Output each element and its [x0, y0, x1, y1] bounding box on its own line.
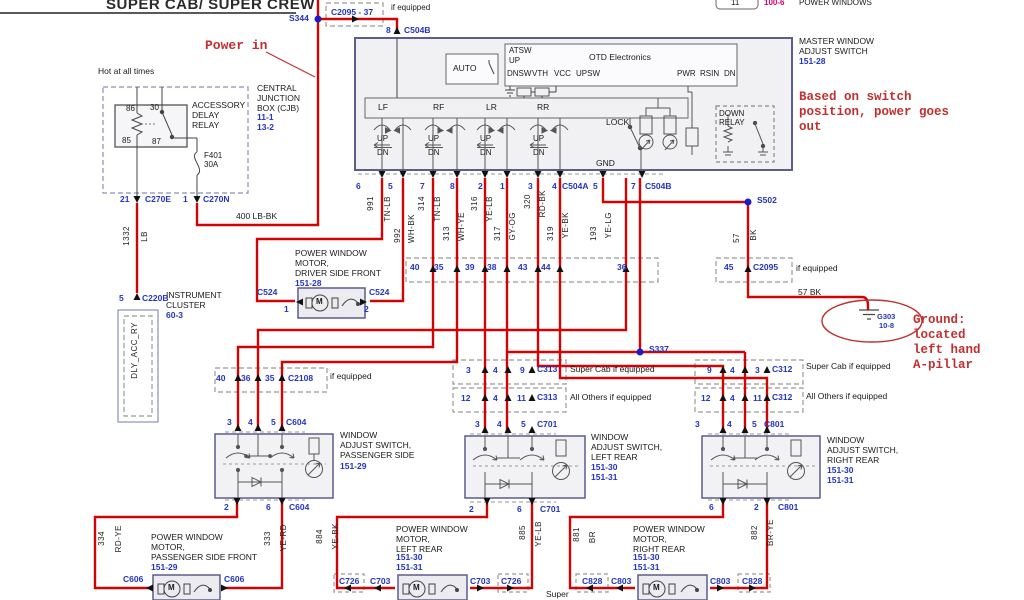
splice-s344-label: S344	[289, 13, 309, 23]
wire-400-lb-bk: 400 LB-BK	[236, 211, 277, 221]
wire-881: 881	[572, 527, 581, 542]
channel-lf: LF	[378, 102, 388, 112]
pin-21: 21	[120, 194, 129, 204]
wiring-diagram: SUPER CAB/ SUPER CREW 11 100-6 POWER WIN…	[0, 0, 1024, 600]
pin-rsin: RSIN	[700, 69, 719, 78]
passenger-switch-ref: 151-29	[340, 461, 366, 471]
signal-dly-acc-ry: DLY_ACC_RY	[130, 322, 139, 379]
pin-dnsw: DNSW	[507, 69, 531, 78]
connector-c726-right: C726	[501, 576, 521, 586]
wire-319: 319	[546, 226, 555, 241]
c2108-pin-36: 36	[241, 373, 250, 383]
passenger-motor-m: M	[168, 583, 175, 592]
connector-c803-right: C803	[710, 576, 730, 586]
connector-c524-left: C524	[257, 287, 277, 297]
wire-316-color: YE-LB	[485, 196, 494, 222]
connector-c803-left: C803	[611, 576, 631, 586]
wire-57-bk-horizontal: 57 BK	[798, 287, 821, 297]
connector-c604-bottom: C604	[289, 502, 309, 512]
connector-c606-left: C606	[123, 574, 143, 584]
relay-pin-87: 87	[152, 137, 161, 146]
note-super-cab-c313: Super Cab if equipped	[570, 364, 655, 374]
msw-pin-1: 1	[500, 181, 505, 191]
pin-up: UP	[509, 56, 520, 65]
wire-57-color: BK	[749, 229, 758, 241]
wire-314: 314	[417, 196, 426, 211]
wire-334-color: RD-YE	[114, 525, 123, 552]
connector-c504b: C504B	[645, 181, 671, 191]
connector-c703-right: C703	[470, 576, 490, 586]
connector-c270n: C270N	[203, 194, 229, 204]
connector-c312-r1: C312	[772, 364, 792, 374]
c313-r2-pin-12: 12	[461, 393, 470, 403]
c801-top-pin-3: 3	[695, 419, 700, 429]
otd-electronics-label: OTD Electronics	[589, 52, 651, 62]
c801-top-pin-5: 5	[752, 419, 757, 429]
connector-c220b: C220B	[142, 293, 168, 303]
note-based-on-switch: Based on switch position, power goes out	[799, 90, 949, 135]
note-all-others-c312: All Others if equipped	[806, 391, 887, 401]
lr-dn-label: DN	[480, 148, 492, 157]
c701-top-pin-5: 5	[521, 419, 526, 429]
channel-rr: RR	[537, 102, 549, 112]
left-rear-switch-ref: 151-30 151-31	[591, 463, 617, 483]
connector-c801-top: C801	[764, 419, 784, 429]
c801-bottom-pin-2: 2	[754, 502, 759, 512]
wire-314-color: TN-LB	[433, 196, 442, 222]
msw-pin-7: 7	[420, 181, 425, 191]
note-hot-at-all-times: Hot at all times	[98, 66, 154, 76]
crow-pin-43: 43	[518, 262, 527, 272]
connector-c828-left: C828	[582, 576, 602, 586]
c312-r1-pin-3: 3	[755, 365, 760, 375]
ground-ref: 10-8	[879, 321, 894, 330]
connector-c726-left: C726	[339, 576, 359, 586]
relay-pin-86: 86	[126, 104, 135, 113]
connector-c604-top: C604	[286, 417, 306, 427]
header-ref: 100-6	[764, 0, 784, 7]
connector-c701-bottom: C701	[540, 504, 560, 514]
msw-pin-6: 6	[356, 181, 361, 191]
note-power-in: Power in	[205, 38, 267, 53]
note-super-cab-c312: Super Cab if equipped	[806, 361, 891, 371]
wire-333: 333	[263, 531, 272, 546]
msw-pin-5: 5	[388, 181, 393, 191]
crow-pin-36: 36	[617, 262, 626, 272]
msw-pin-4: 4	[552, 181, 557, 191]
wire-317: 317	[493, 226, 502, 241]
c2108-pin-35: 35	[265, 373, 274, 383]
connector-c801-bottom: C801	[778, 502, 798, 512]
left-rear-motor-m: M	[413, 583, 420, 592]
passenger-motor-label: POWER WINDOW MOTOR, PASSENGER SIDE FRONT	[151, 533, 257, 562]
c701-top-pin-4: 4	[497, 419, 502, 429]
rr-up-label: UP	[533, 134, 544, 143]
pin-atsw: ATSW	[509, 46, 532, 55]
c604-bottom-pin-2: 2	[224, 502, 229, 512]
c801-top-pin-4: 4	[727, 419, 732, 429]
wire-992-color: WH-BK	[407, 214, 416, 243]
rr-dn-label: DN	[533, 148, 545, 157]
c2108-pin-40: 40	[216, 373, 225, 383]
wire-193-color: YE-LG	[604, 212, 613, 239]
c604-bottom-pin-6: 6	[266, 502, 271, 512]
relay-pin-30: 30	[150, 103, 159, 112]
wire-320-color: RD-BK	[538, 190, 547, 217]
c701-top-pin-3: 3	[475, 419, 480, 429]
connector-c701-top: C701	[537, 419, 557, 429]
accessory-delay-relay-label: ACCESSORY DELAY RELAY	[192, 101, 245, 130]
c313-r1-pin-4: 4	[493, 365, 498, 375]
wire-320: 320	[523, 194, 532, 209]
wire-334: 334	[97, 531, 106, 546]
master-switch-label: MASTER WINDOW ADJUST SWITCH	[799, 37, 874, 57]
right-rear-motor-m: M	[653, 583, 660, 592]
c312-r2-pin-4: 4	[730, 393, 735, 403]
splice-s502-label: S502	[757, 195, 777, 205]
crow-pin-39: 39	[465, 262, 474, 272]
note-if-equipped-crow: if equipped	[796, 263, 838, 273]
connector-c2108: C2108	[288, 373, 313, 383]
connector-c828-right: C828	[742, 576, 762, 586]
left-rear-motor-ref: 151-30 151-31	[396, 553, 422, 573]
wire-1332-number: 1332	[122, 226, 131, 246]
pin-upsw: UPSW	[576, 69, 600, 78]
instrument-cluster-label: INSTRUMENT CLUSTER	[166, 291, 222, 311]
msw-pin-5-c504a: 5	[593, 181, 598, 191]
wire-992: 992	[393, 228, 402, 243]
right-rear-motor-ref: 151-30 151-31	[633, 553, 659, 573]
msw-pin-2: 2	[478, 181, 483, 191]
fuse-f401-label: F401 30A	[204, 151, 222, 169]
right-rear-motor-label: POWER WINDOW MOTOR, RIGHT REAR	[633, 525, 705, 554]
connector-c524-right: C524	[369, 287, 389, 297]
wire-317-color: GY-OG	[508, 212, 517, 240]
note-super-bottom: Super	[546, 589, 569, 599]
connector-c504b-top: C504B	[404, 25, 430, 35]
connector-c2095: C2095	[753, 262, 778, 272]
connector-c313-r2: C313	[537, 392, 557, 402]
pin-1-c270n: 1	[183, 194, 188, 204]
left-rear-switch-label: WINDOW ADJUST SWITCH, LEFT REAR	[591, 433, 662, 462]
connector-c504a: C504A	[562, 181, 588, 191]
page-title: SUPER CAB/ SUPER CREW	[106, 0, 315, 13]
pin-vth: VTH	[532, 69, 548, 78]
c604-top-pin-5: 5	[271, 417, 276, 427]
down-relay-label: DOWN RELAY	[719, 109, 745, 127]
left-rear-motor-label: POWER WINDOW MOTOR, LEFT REAR	[396, 525, 468, 554]
wire-885: 885	[518, 525, 527, 540]
cjb-page-refs: 11-1 13-2	[257, 113, 274, 133]
wire-884-color: YE-BK	[331, 523, 340, 550]
c313-r2-pin-4: 4	[493, 393, 498, 403]
c312-r2-pin-11: 11	[753, 393, 762, 403]
passenger-motor-ref: 151-29	[151, 562, 177, 572]
driver-motor-pin-1: 1	[284, 304, 289, 314]
c312-r1-pin-9: 9	[707, 365, 712, 375]
lock-label: LOCK	[606, 117, 629, 127]
wire-884: 884	[315, 529, 324, 544]
wire-991: 991	[366, 196, 375, 211]
note-ground-location: Ground: located left hand A-pillar	[913, 313, 981, 373]
c604-top-pin-4: 4	[248, 417, 253, 427]
connector-c313-r1: C313	[537, 364, 557, 374]
connector-c606-right: C606	[224, 574, 244, 584]
c312-r2-pin-12: 12	[701, 393, 710, 403]
c313-r2-pin-11: 11	[517, 393, 526, 403]
right-rear-switch-ref: 151-30 151-31	[827, 466, 853, 486]
instrument-cluster-ref: 60-3	[166, 311, 183, 321]
wire-313-color: WH-YE	[457, 212, 466, 241]
gnd-label: GND	[596, 158, 615, 168]
pin-5-c220b: 5	[119, 293, 124, 303]
wire-316: 316	[470, 196, 479, 211]
c312-r1-pin-4: 4	[730, 365, 735, 375]
header-label: POWER WINDOWS	[799, 0, 872, 7]
relay-pin-85: 85	[122, 136, 131, 145]
msw-pin-3: 3	[528, 181, 533, 191]
pin-vcc: VCC	[554, 69, 571, 78]
driver-motor-ref: 151-28	[295, 278, 321, 288]
c313-r1-pin-3: 3	[466, 365, 471, 375]
cjb-label: CENTRAL JUNCTION BOX (CJB)	[257, 84, 300, 113]
auto-label: AUTO	[453, 63, 476, 73]
c604-top-pin-3: 3	[227, 417, 232, 427]
connector-c270e: C270E	[145, 194, 171, 204]
crow-pin-35: 35	[434, 262, 443, 272]
header-cell: 11	[731, 0, 739, 7]
driver-motor-pin-2: 2	[364, 304, 369, 314]
lf-up-label: UP	[377, 134, 388, 143]
right-rear-switch-label: WINDOW ADJUST SWITCH, RIGHT REAR	[827, 436, 898, 465]
note-if-equipped-top: if equipped	[391, 3, 430, 12]
pin-pwr: PWR	[677, 69, 696, 78]
connector-c312-r2: C312	[772, 392, 792, 402]
driver-motor-label: POWER WINDOW MOTOR, DRIVER SIDE FRONT	[295, 249, 381, 278]
pin-8-c504b: 8	[386, 25, 391, 35]
wire-882: 882	[750, 525, 759, 540]
wire-991-color: TN-LB	[383, 196, 392, 222]
ground-g303: G303	[877, 312, 895, 321]
pin-dn: DN	[724, 69, 736, 78]
note-all-others-c313: All Others if equipped	[570, 392, 651, 402]
wire-882-color: BR-YE	[766, 519, 775, 546]
wire-881-color: BR	[588, 531, 597, 543]
rf-up-label: UP	[428, 134, 439, 143]
channel-lr: LR	[486, 102, 497, 112]
wire-313: 313	[442, 226, 451, 241]
crow-pin-44: 44	[541, 262, 550, 272]
rf-dn-label: DN	[428, 148, 440, 157]
crow-pin-40: 40	[410, 262, 419, 272]
wire-193: 193	[589, 226, 598, 241]
wire-319-color: YE-BK	[561, 212, 570, 239]
c801-bottom-pin-6: 6	[709, 502, 714, 512]
wire-333-color: YE-RD	[279, 524, 288, 551]
passenger-switch-label: WINDOW ADJUST SWITCH, PASSENGER SIDE	[340, 431, 414, 460]
lf-dn-label: DN	[377, 148, 389, 157]
crow-pin-45: 45	[724, 262, 733, 272]
crow-pin-38: 38	[487, 262, 496, 272]
note-if-equipped-c2108: if equipped	[330, 371, 372, 381]
lr-up-label: UP	[480, 134, 491, 143]
ground-highlight-ellipse	[822, 300, 922, 342]
master-switch-ref: 151-28	[799, 56, 825, 66]
msw-pin-7-c504b: 7	[631, 181, 636, 191]
wire-885-color: YE-LB	[534, 521, 543, 547]
c701-bottom-pin-6: 6	[517, 504, 522, 514]
connector-c2095-top: C2095 - 37	[331, 7, 373, 17]
c701-bottom-pin-2: 2	[469, 504, 474, 514]
c313-r1-pin-9: 9	[520, 365, 525, 375]
msw-pin-8: 8	[450, 181, 455, 191]
channel-rf: RF	[433, 102, 444, 112]
driver-motor-m: M	[316, 297, 323, 306]
connector-c703-left: C703	[370, 576, 390, 586]
wire-57: 57	[732, 233, 741, 243]
wire-1332-color: LB	[140, 231, 149, 242]
splice-s337-label: S337	[649, 344, 669, 354]
